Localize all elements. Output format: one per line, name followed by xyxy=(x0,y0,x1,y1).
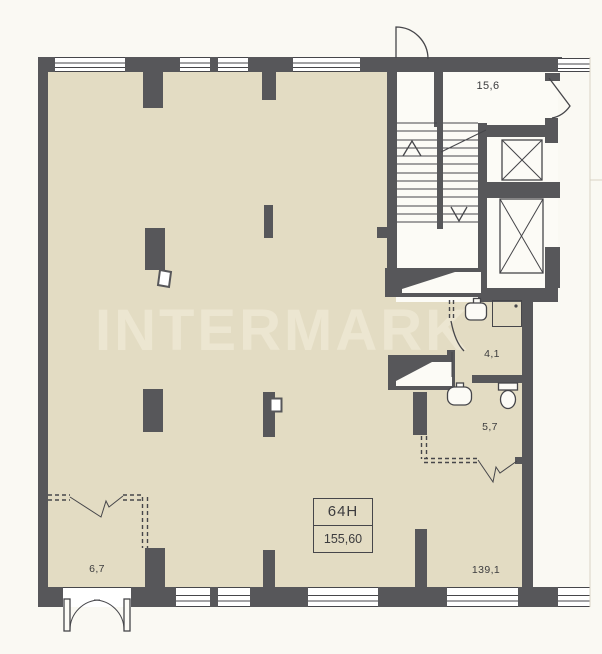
room-label-shower-room: 4,1 xyxy=(479,348,505,360)
unit-number: 64Н xyxy=(314,499,372,525)
toilet-icon xyxy=(499,383,518,409)
room-label-elevator-hall: 15,6 xyxy=(470,80,506,92)
ramp-wedge xyxy=(402,272,481,293)
site-boundary-line xyxy=(590,57,602,607)
entry-double-door xyxy=(64,599,130,631)
unit-total-area: 155,60 xyxy=(314,525,372,552)
dashed-partition xyxy=(48,300,517,548)
room-label-main-space: 139,1 xyxy=(468,564,504,576)
floor-plan: INTERMARK xyxy=(0,0,602,654)
room-label-vestibule: 6,7 xyxy=(83,563,111,575)
plan-linework xyxy=(0,0,602,654)
door-leaf-symbol xyxy=(158,270,171,287)
shower-drain-icon xyxy=(514,304,517,307)
elevator-icon xyxy=(500,140,543,273)
stair-cut-line xyxy=(441,130,486,152)
room-label-wc: 5,7 xyxy=(476,421,504,433)
unit-info-box: 64Н 155,60 xyxy=(313,498,373,553)
ramp-wedge xyxy=(396,362,452,386)
stairs-icon xyxy=(397,123,486,222)
door-leaf-symbol xyxy=(271,399,282,412)
